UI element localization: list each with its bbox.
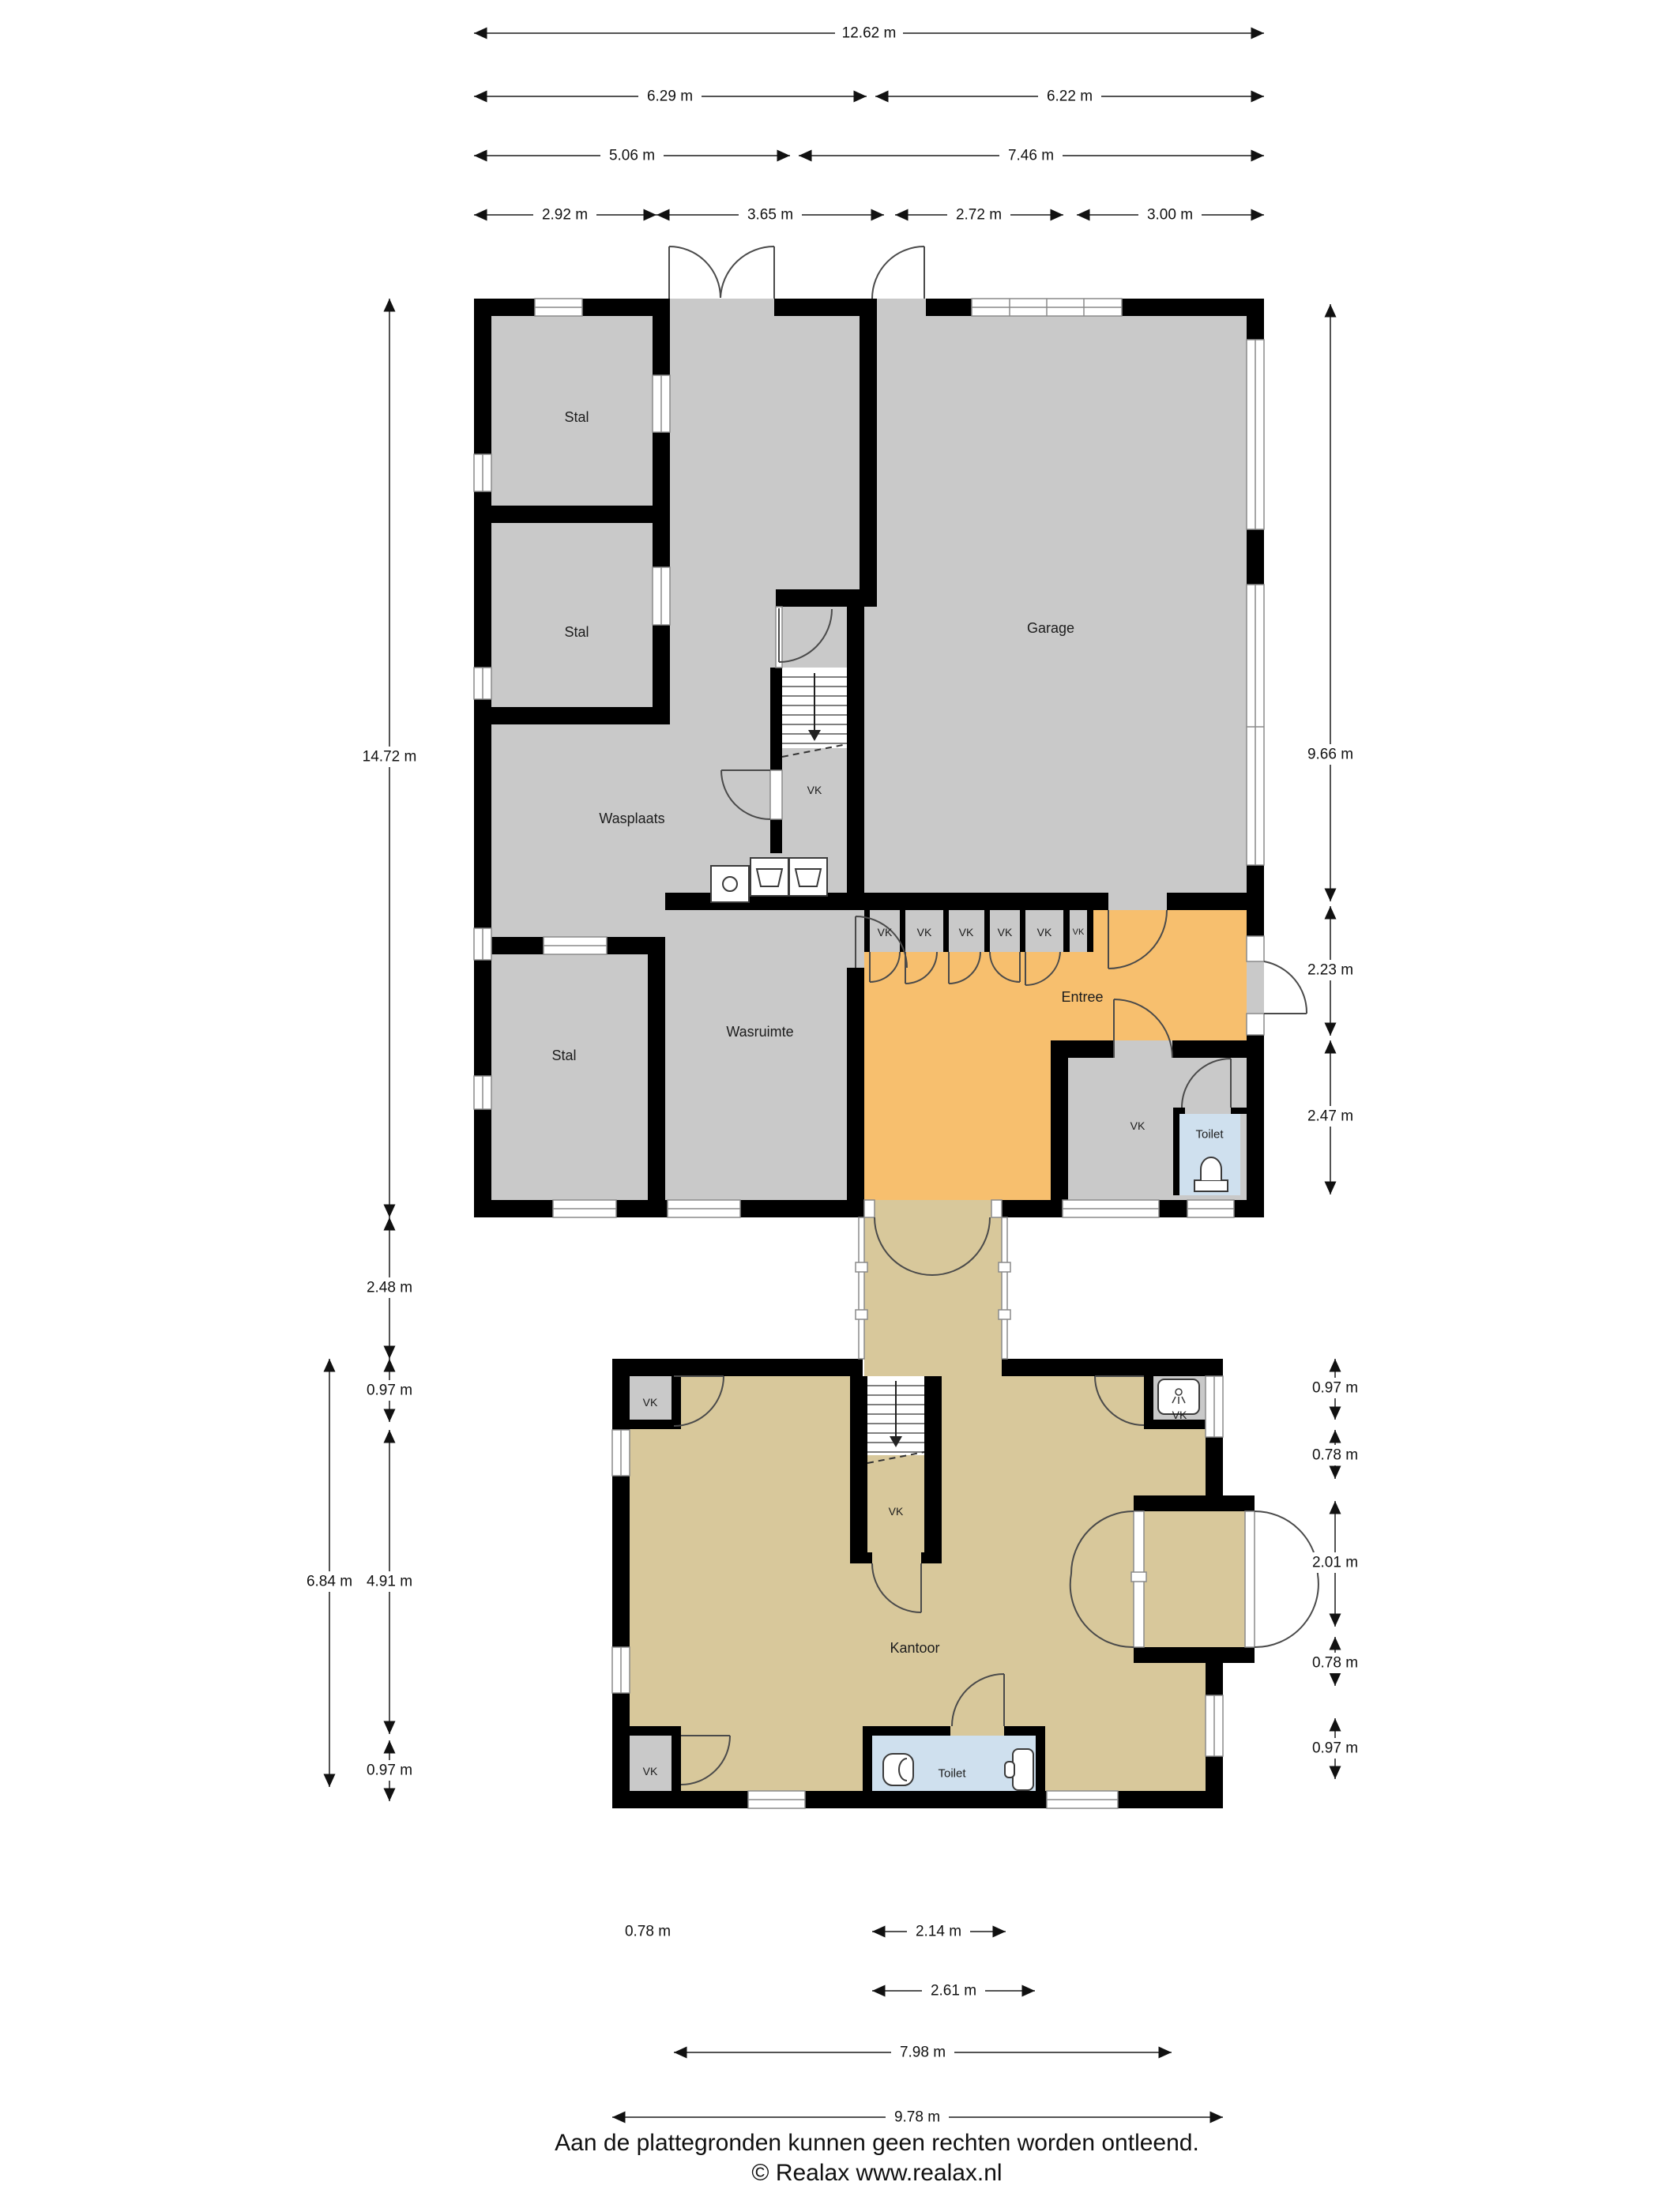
label-vk-room: VK [1130, 1119, 1145, 1132]
label-stal-3: Stal [551, 1048, 576, 1063]
dim-left: 14.72 m 2.48 m 0.97 m 6.84 m 4.91 m 0.97… [298, 299, 423, 1801]
washing-machine-icon [789, 858, 827, 896]
dim-top-row-2: 6.29 m 6.22 m [474, 86, 1264, 107]
dim-top-row-4: 2.92 m 3.65 m 2.72 m 3.00 m [474, 205, 1264, 225]
dim-label: 0.78 m [1312, 1655, 1358, 1672]
footer-copyright: © Realax www.realax.nl [751, 2160, 1002, 2186]
dim-label: 0.78 m [625, 1924, 671, 1940]
dim-label: 9.78 m [894, 2109, 940, 2126]
dim-label: 6.29 m [647, 88, 693, 105]
label-stal-2: Stal [564, 624, 589, 640]
label-stal-1: Stal [564, 409, 589, 425]
dim-label: 0.97 m [1312, 1740, 1358, 1757]
dim-label: 2.47 m [1307, 1108, 1353, 1125]
door-garage-top [872, 246, 924, 299]
dim-right-lower: 0.97 m 0.78 m 2.01 m 0.78 m 0.97 m [1303, 1359, 1367, 1779]
dim-label: 2.01 m [1312, 1555, 1358, 1571]
dim-label: 6.22 m [1047, 88, 1093, 105]
dim-label: 7.46 m [1008, 148, 1054, 164]
label-vk-2: VK [917, 926, 932, 939]
label-vk-stair-upper: VK [807, 784, 822, 796]
dim-right-upper: 9.66 m 2.23 m 2.47 m [1299, 304, 1362, 1194]
washing-machine-icon [750, 858, 788, 896]
dim-label: 0.78 m [1312, 1447, 1358, 1464]
label-kantoor: Kantoor [890, 1640, 939, 1656]
dim-bottom: 0.78 m 2.14 m 2.61 m 7.98 m 9.78 m [612, 1921, 1223, 2127]
dim-label: 12.62 m [842, 25, 897, 42]
dim-label: 4.91 m [367, 1574, 412, 1590]
dim-label: 3.00 m [1147, 207, 1193, 224]
label-vk-4: VK [998, 926, 1013, 939]
floorplan-drawing: Stal Stal Stal Garage Wasplaats Wasruimt… [0, 0, 1659, 2212]
label-entree: Entree [1061, 989, 1103, 1005]
label-vk-6: VK [1073, 927, 1085, 937]
label-garage: Garage [1027, 620, 1074, 636]
dim-label: 0.97 m [367, 1762, 412, 1779]
appliance-icon [711, 866, 749, 902]
double-door-top [669, 246, 774, 299]
bay-wall-top [1134, 1495, 1255, 1511]
footer: Aan de plattegronden kunnen geen rechten… [555, 2130, 1199, 2186]
vk-closet-lower-bl [630, 1736, 671, 1791]
footer-disclaimer: Aan de plattegronden kunnen geen rechten… [555, 2130, 1199, 2156]
dim-label: 2.72 m [956, 207, 1002, 224]
dim-label: 6.84 m [307, 1574, 352, 1590]
dim-label: 9.66 m [1307, 747, 1353, 763]
dim-label: 0.97 m [367, 1382, 412, 1399]
label-vk-5: VK [1037, 926, 1052, 939]
corridor-floor [864, 1200, 1002, 1376]
label-vk-3: VK [959, 926, 974, 939]
label-vk-stair-lower: VK [889, 1505, 904, 1518]
floorplan-page: Stal Stal Stal Garage Wasplaats Wasruimt… [0, 0, 1659, 2212]
label-vk-lower-tl: VK [643, 1396, 658, 1409]
label-toilet-upper: Toilet [1195, 1128, 1224, 1142]
bay-wall-bottom [1134, 1647, 1255, 1663]
dim-label: 0.97 m [1312, 1380, 1358, 1397]
label-vk-lower-bl: VK [643, 1765, 658, 1777]
label-wasplaats: Wasplaats [599, 811, 664, 826]
dim-label: 2.14 m [916, 1924, 961, 1940]
label-vk-shower: VK [1172, 1409, 1187, 1421]
double-door-bay-outer [1255, 1511, 1319, 1647]
urinal-icon [883, 1754, 913, 1785]
dim-label: 2.23 m [1307, 962, 1353, 979]
wall-garage-left [860, 299, 877, 607]
dim-top-row-1: 12.62 m [474, 23, 1264, 43]
dim-label: 2.48 m [367, 1280, 412, 1296]
label-wasruimte: Wasruimte [726, 1024, 793, 1040]
dim-label: 14.72 m [363, 749, 417, 766]
dim-label: 3.65 m [747, 207, 793, 224]
dim-label: 7.98 m [900, 2045, 946, 2061]
dim-label: 2.92 m [542, 207, 588, 224]
bay-vestibule-floor [1144, 1511, 1245, 1647]
label-vk-1: VK [878, 926, 893, 939]
dim-top-row-3: 5.06 m 7.46 m [474, 145, 1264, 166]
dim-label: 2.61 m [931, 1983, 976, 1999]
label-toilet-lower: Toilet [938, 1767, 966, 1781]
dim-label: 5.06 m [609, 148, 655, 164]
